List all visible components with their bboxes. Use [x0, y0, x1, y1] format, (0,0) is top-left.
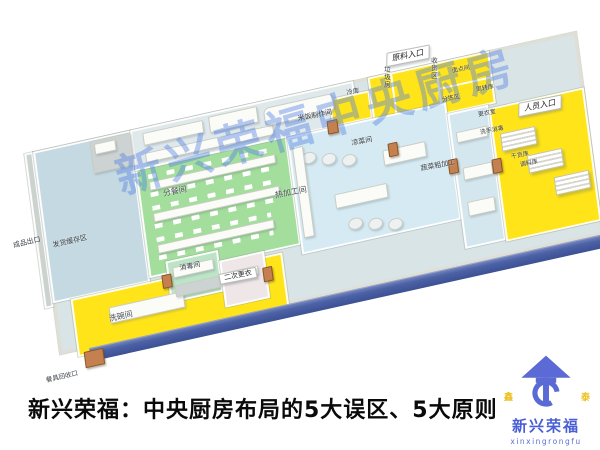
raw-material-entrance-flag: 原料入口	[386, 44, 429, 67]
tableware-return-door	[84, 348, 106, 369]
logo-name-en: xinxingrongfu	[496, 437, 596, 446]
caption-title: 新兴荣福：中央厨房布局的5大误区、5大原则	[28, 392, 498, 424]
logo-left-char: 鑫	[504, 390, 513, 403]
central-kitchen-floorplan	[33, 32, 600, 355]
door	[262, 266, 274, 283]
logo-right-char: 泰	[581, 390, 590, 403]
receiving-area-label: 收货区	[430, 57, 437, 80]
door	[491, 158, 503, 175]
brand-logo: 鑫 泰 新兴荣福 xinxingrongfu	[496, 354, 596, 446]
door	[387, 142, 399, 158]
door	[161, 273, 173, 289]
door	[327, 119, 339, 135]
screenshot-canvas: 新兴荣福中央厨房 原料入口 人员入口 成品出口 发货缓存区 分餐间 热加工间 米…	[0, 0, 600, 450]
tableware-return-label: 餐具回收口	[45, 370, 78, 384]
garbage-room-label: 垃圾房	[383, 66, 390, 89]
logo-name-cn: 新兴荣福	[496, 415, 596, 436]
logo-mark-icon	[512, 354, 580, 410]
